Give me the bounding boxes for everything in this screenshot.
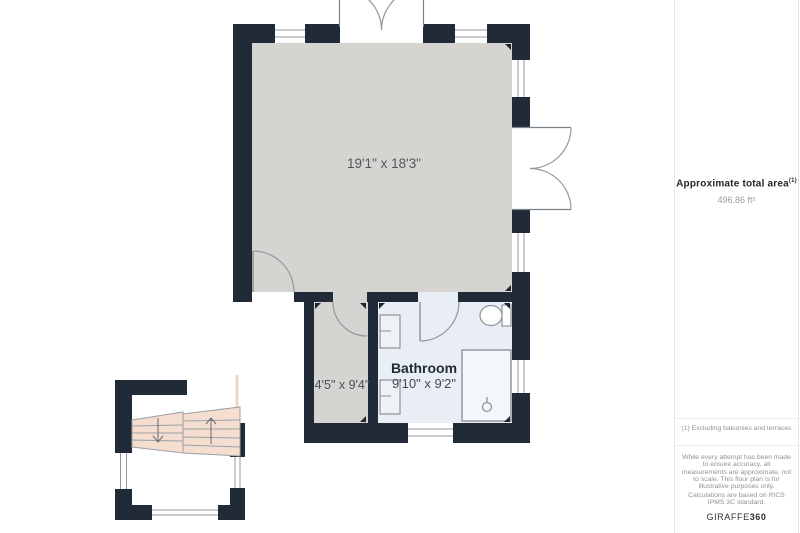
toilet bbox=[480, 305, 511, 326]
sidebar-divider bbox=[675, 418, 798, 419]
total-area-value: 496.86 ft² bbox=[675, 195, 798, 205]
info-sidebar: Approximate total area(1) 496.86 ft² (1)… bbox=[674, 0, 799, 533]
window-right-1 bbox=[512, 60, 530, 97]
wall-left bbox=[233, 24, 252, 302]
bathroom-dimensions-label: 9'10" x 9'2" bbox=[392, 376, 456, 391]
toilet-bowl bbox=[480, 306, 502, 326]
stairs-wall-left bbox=[115, 380, 132, 520]
staircase-structure bbox=[115, 375, 245, 520]
french-door-top bbox=[340, 0, 424, 43]
wall-hallway-left bbox=[304, 292, 314, 443]
hallway-floor bbox=[314, 302, 368, 423]
total-area-block: Approximate total area(1) 496.86 ft² bbox=[675, 178, 798, 205]
floor-plan: 19'1" x 18'3" 4'5" x 9'4" Bathroom 9'10"… bbox=[0, 0, 674, 533]
bathroom-name-label: Bathroom bbox=[391, 360, 457, 376]
window-right-2 bbox=[512, 233, 530, 272]
door-swing-arc bbox=[530, 169, 571, 210]
total-area-title: Approximate total area(1) bbox=[675, 178, 798, 189]
hallway-opening bbox=[333, 292, 367, 302]
brand-name: GIRAFFE bbox=[706, 512, 749, 522]
disclaimer-measurements: While every attempt has been made to ens… bbox=[680, 454, 793, 491]
window-bathroom-bottom bbox=[408, 423, 453, 443]
area-footnote: (1) Excluding balconies and terraces bbox=[679, 425, 794, 432]
shower bbox=[462, 350, 511, 421]
hallway-dimensions-label: 4'5" x 9'4" bbox=[315, 378, 370, 392]
french-door-right bbox=[512, 127, 571, 210]
stairs-window-right bbox=[230, 457, 245, 488]
floorplan-page: 19'1" x 18'3" 4'5" x 9'4" Bathroom 9'10"… bbox=[0, 0, 800, 533]
stairs-window-left bbox=[115, 453, 132, 489]
stairs-window-bottom bbox=[152, 505, 218, 520]
stairs bbox=[132, 407, 240, 456]
window-top-left bbox=[275, 24, 305, 43]
door-swing-arc bbox=[530, 128, 571, 169]
sidebar-divider bbox=[675, 445, 798, 446]
window-top-right bbox=[455, 24, 487, 43]
total-area-footnote-marker: (1) bbox=[789, 178, 797, 184]
brand-suffix: 360 bbox=[750, 512, 767, 522]
disclaimer-standard: Calculations are based on RICS IPMS 3C s… bbox=[680, 492, 793, 507]
wall-hall-bath-divider bbox=[368, 292, 378, 423]
french-door-right-opening bbox=[512, 127, 530, 210]
giraffe360-logo: GIRAFFE360 bbox=[675, 512, 798, 522]
window-bathroom-right bbox=[512, 360, 530, 393]
entrance-door-opening bbox=[252, 292, 294, 302]
total-area-label: Approximate total area bbox=[676, 178, 789, 189]
bathroom-door-opening bbox=[418, 292, 458, 302]
shower-tray bbox=[462, 350, 511, 421]
main-room-dimensions-label: 19'1" x 18'3" bbox=[347, 156, 421, 171]
